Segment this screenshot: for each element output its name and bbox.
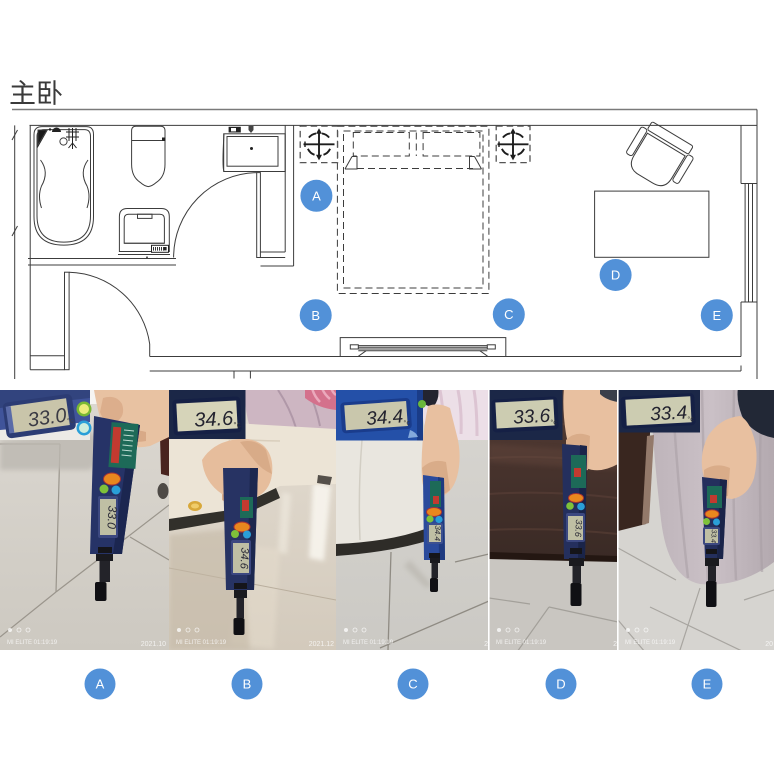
svg-text:MI ELITE 01:19:19: MI ELITE 01:19:19 <box>496 640 547 646</box>
svg-text:°c: °c <box>550 418 557 426</box>
svg-text:主卧: 主卧 <box>9 79 63 109</box>
svg-text:34.4: 34.4 <box>366 406 404 430</box>
svg-text:33.4: 33.4 <box>650 402 688 425</box>
svg-text:E: E <box>703 677 712 692</box>
svg-text:E: E <box>712 308 721 323</box>
svg-text:2: 2 <box>613 641 617 648</box>
svg-text:D: D <box>556 677 565 692</box>
svg-text:A: A <box>312 189 321 204</box>
svg-text:MI ELITE 01:19:19: MI ELITE 01:19:19 <box>343 640 394 646</box>
svg-text:C: C <box>408 677 417 692</box>
svg-text:33.6: 33.6 <box>573 519 584 537</box>
svg-text:C: C <box>504 307 513 322</box>
svg-text:A: A <box>96 677 105 692</box>
svg-text:2021.12: 2021.12 <box>309 641 334 648</box>
svg-text:MI ELITE 01:19:19: MI ELITE 01:19:19 <box>625 640 676 646</box>
svg-text:2021.10: 2021.10 <box>141 641 166 648</box>
svg-text:MI ELITE 01:19:19: MI ELITE 01:19:19 <box>176 640 227 646</box>
svg-text:33.6: 33.6 <box>513 406 551 429</box>
svg-text:°c: °c <box>687 415 694 423</box>
svg-text:34.4: 34.4 <box>433 525 443 542</box>
svg-text:MI ELITE 01:19:19: MI ELITE 01:19:19 <box>7 640 58 646</box>
svg-text:20: 20 <box>765 641 773 648</box>
svg-text:B: B <box>311 308 320 323</box>
svg-text:°c: °c <box>403 419 410 427</box>
svg-text:D: D <box>611 268 620 283</box>
svg-text:B: B <box>243 677 252 692</box>
svg-text:33.0: 33.0 <box>104 505 119 529</box>
svg-text:2: 2 <box>484 641 488 648</box>
svg-text:°c: °c <box>233 420 241 429</box>
svg-text:34.6: 34.6 <box>194 408 235 432</box>
svg-text:33.4: 33.4 <box>709 529 717 543</box>
svg-text:34.6: 34.6 <box>237 547 250 570</box>
